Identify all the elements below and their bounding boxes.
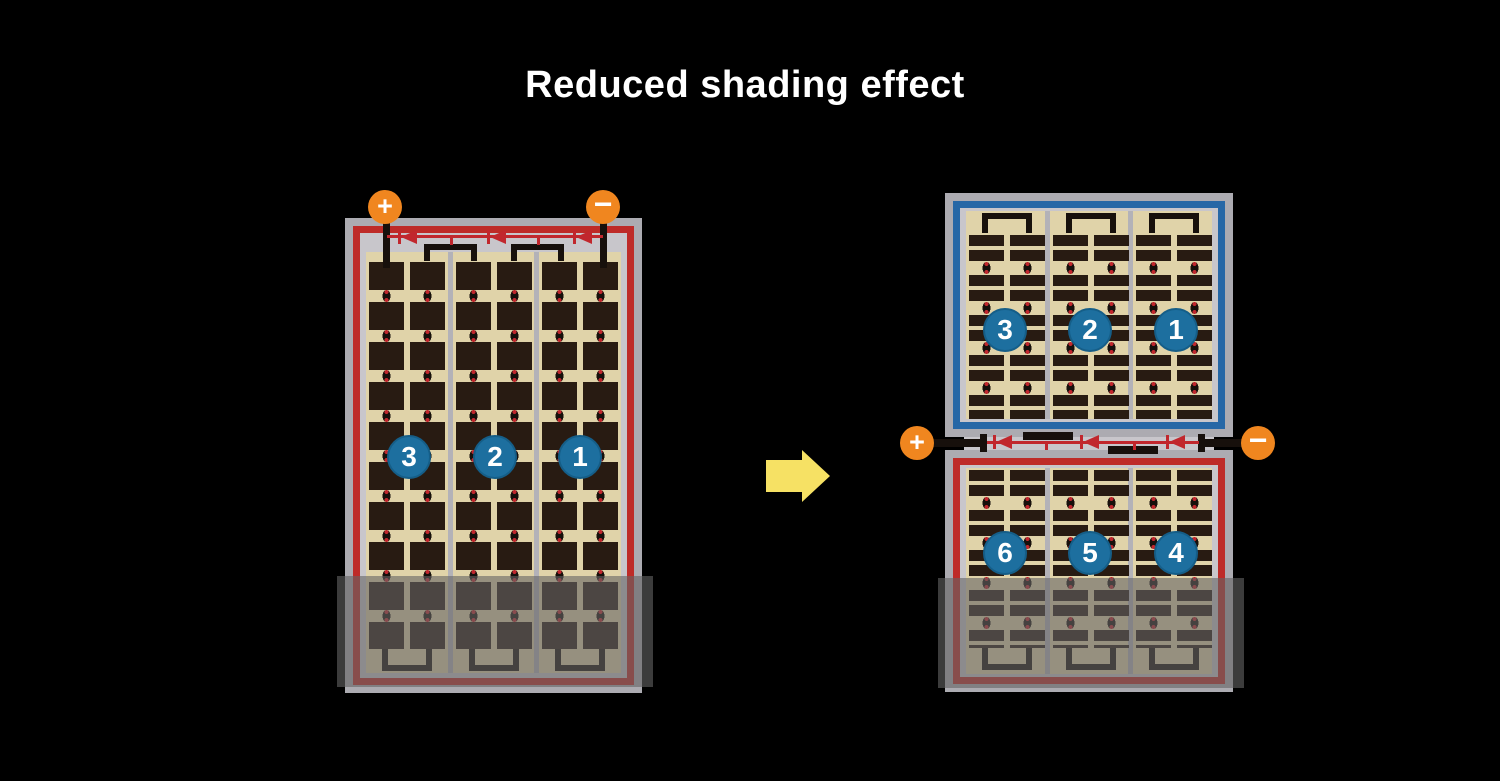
wire-tap-tick: [1045, 441, 1048, 450]
string-number-badge: 6: [983, 531, 1027, 575]
bypass-diode-icon: [398, 230, 417, 244]
negative-terminal: −: [1241, 426, 1275, 460]
string-number-badge: 3: [983, 308, 1027, 352]
string-number-badge: 4: [1154, 531, 1198, 575]
bypass-diode-icon: [1080, 435, 1099, 449]
diagram-stage: Reduced shading effect: [0, 0, 1500, 781]
arrow-head-icon: [802, 450, 830, 502]
wire-tap-tick: [450, 235, 453, 245]
bypass-diode-icon: [573, 230, 592, 244]
string-number-badge: 1: [1154, 308, 1198, 352]
diode-triangle: [401, 230, 417, 244]
positive-terminal: +: [368, 190, 402, 224]
string-number-badge: 2: [1068, 308, 1112, 352]
string-number-badge: 5: [1068, 531, 1112, 575]
diode-triangle: [490, 230, 506, 244]
junction-stub: [1198, 434, 1205, 452]
wire-tap-tick: [1133, 441, 1136, 450]
diagram-title: Reduced shading effect: [0, 64, 1490, 107]
series-link-upper: [1023, 432, 1073, 440]
wire-tap-tick: [537, 235, 540, 245]
top-interconnect: [982, 213, 1032, 233]
left-module: + − 3 2 1: [330, 190, 660, 705]
diode-triangle: [1083, 435, 1099, 449]
diode-triangle: [996, 435, 1012, 449]
top-interconnect: [1149, 213, 1199, 233]
shade-overlay: [337, 576, 653, 687]
bypass-diode-icon: [993, 435, 1012, 449]
negative-terminal: −: [586, 190, 620, 224]
shade-overlay: [938, 578, 1244, 688]
transition-arrow: [766, 450, 830, 502]
bypass-diode-icon: [487, 230, 506, 244]
string-number-badge: 2: [473, 435, 517, 479]
diode-triangle: [576, 230, 592, 244]
positive-terminal: +: [900, 426, 934, 460]
string-series-bridge: [511, 244, 564, 261]
positive-terminal-stem: [383, 217, 390, 268]
top-interconnect: [1066, 213, 1116, 233]
string-series-bridge: [424, 244, 477, 261]
diode-triangle: [1169, 435, 1185, 449]
junction-stub: [980, 434, 987, 452]
negative-terminal-stem: [600, 217, 607, 268]
arrow-shaft: [766, 460, 802, 492]
right-module: + − 3 2 1 6 5 4: [900, 190, 1280, 705]
string-number-badge: 1: [558, 435, 602, 479]
bypass-diode-icon: [1166, 435, 1185, 449]
string-number-badge: 3: [387, 435, 431, 479]
positive-lead-wire: [932, 439, 984, 447]
